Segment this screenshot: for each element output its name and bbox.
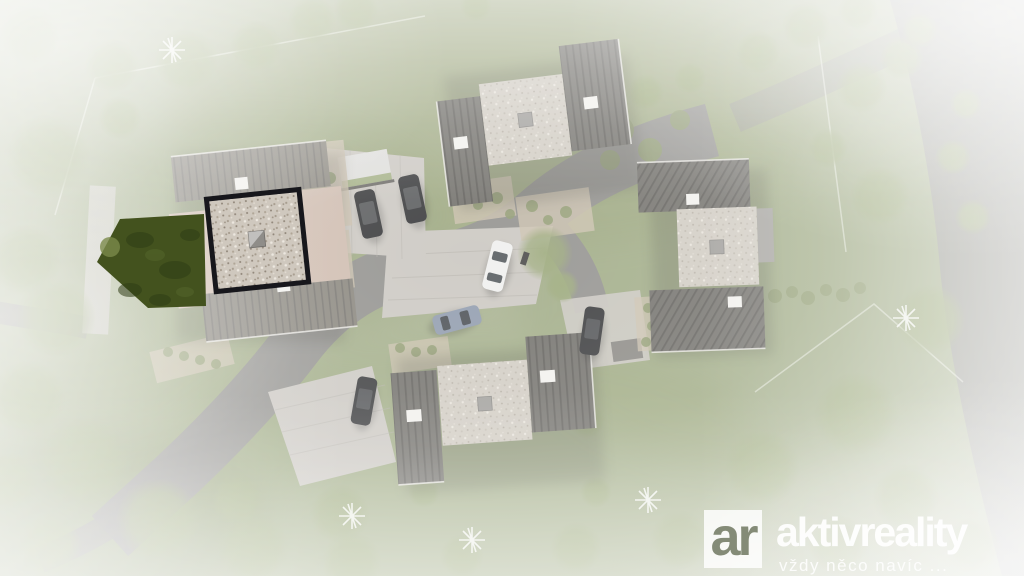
logo-monogram-box: ar — [704, 510, 762, 568]
site-plan-svg — [0, 0, 1024, 576]
moss-patch — [100, 237, 120, 257]
highlighted-roof — [206, 189, 308, 291]
watermark: ar aktivreality vždy něco navíc ... — [704, 504, 966, 576]
brand-tagline: vždy něco navíc ... — [779, 556, 966, 576]
aerial-render: ar aktivreality vždy něco navíc ... — [0, 0, 1024, 576]
logo-monogram: ar — [710, 510, 755, 564]
logo-text: aktivreality vždy něco navíc ... — [776, 504, 966, 576]
brand-name: aktivreality — [776, 512, 966, 553]
